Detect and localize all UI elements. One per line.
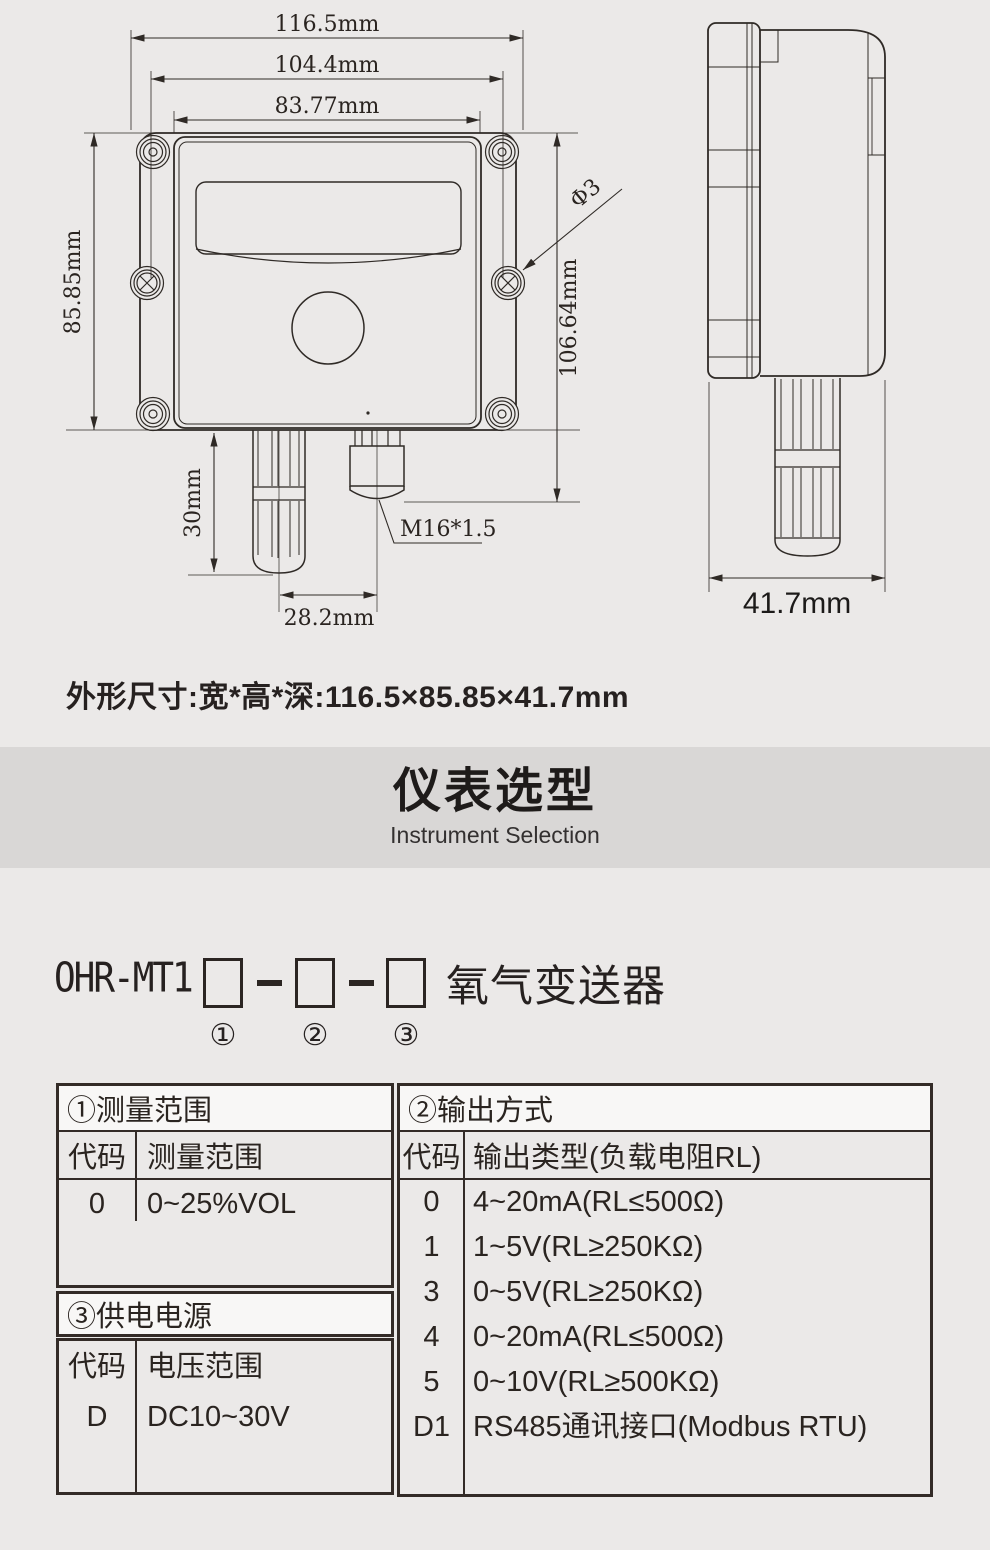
range-row-value: 0~25%VOL	[137, 1180, 391, 1221]
output-header-row: 代码 输出类型(负载电阻RL)	[400, 1132, 930, 1180]
power-col-value: 电压范围	[147, 1341, 391, 1393]
output-code-column: 0 1 3 4 5 D1	[400, 1180, 465, 1494]
datasheet-page: 116.5mm 104.4mm 83.77mm 85.85mm 106.64mm…	[0, 0, 990, 1550]
output-value-column: 4~20mA(RL≤500Ω) 1~5V(RL≥250KΩ) 0~5V(RL≥2…	[465, 1180, 930, 1494]
dim-width-inner: 83.77mm	[275, 94, 380, 119]
table-row: 0 0~25%VOL	[59, 1180, 391, 1285]
dim-width-total: 116.5mm	[275, 12, 380, 37]
slot-mark-1: ①	[203, 1018, 243, 1053]
model-dash-2	[349, 980, 374, 986]
model-dash-1	[257, 980, 282, 986]
output-code: D1	[413, 1405, 450, 1450]
power-row-code: D	[87, 1393, 108, 1441]
power-value-column: 电压范围 DC10~30V	[137, 1341, 391, 1492]
display-window	[196, 182, 461, 254]
banner-title: 仪表选型	[393, 766, 597, 819]
range-col-code: 代码	[59, 1132, 137, 1178]
range-section-title: ①测量范围	[59, 1086, 391, 1132]
model-slot-2	[295, 958, 335, 1008]
dim-hole-spacing: 104.4mm	[275, 53, 380, 78]
output-value: 4~20mA(RL≤500Ω)	[473, 1180, 930, 1225]
output-value: 0~10V(RL≥500KΩ)	[473, 1360, 930, 1405]
dim-height-body: 85.85mm	[61, 230, 86, 335]
output-col-code: 代码	[400, 1132, 465, 1178]
front-body	[174, 137, 481, 428]
output-value: 1~5V(RL≥250KΩ)	[473, 1225, 930, 1270]
output-col-value: 输出类型(负载电阻RL)	[465, 1132, 930, 1178]
mounting-screws	[131, 136, 525, 431]
side-view	[708, 23, 885, 556]
output-code: 5	[423, 1360, 439, 1405]
model-prefix: OHR-MT1	[54, 955, 192, 1002]
output-body: 0 1 3 4 5 D1 4~20mA(RL≤500Ω) 1~5V(RL≥250…	[400, 1180, 930, 1494]
dim-probe-offset: 28.2mm	[284, 606, 375, 631]
output-value: 0~5V(RL≥250KΩ)	[473, 1270, 930, 1315]
section-banner: 仪表选型 Instrument Selection	[0, 747, 990, 868]
model-product-name: 氧气变送器	[446, 952, 666, 1014]
dim-depth: 41.7mm	[743, 587, 851, 620]
table-power-title-box: ③供电电源	[56, 1291, 394, 1337]
range-col-value: 测量范围	[137, 1132, 391, 1178]
sensor-circle	[292, 292, 364, 364]
output-code: 0	[423, 1180, 439, 1225]
range-row-code: 0	[59, 1180, 137, 1221]
dim-height-with-gland: 106.64mm	[557, 259, 582, 378]
overall-size-note: 外形尺寸:宽*高*深:116.5×85.85×41.7mm	[66, 672, 629, 716]
power-section-title: ③供电电源	[67, 1293, 212, 1335]
slot-mark-2: ②	[295, 1018, 335, 1053]
dim-hole-diameter: Φ3	[566, 174, 607, 214]
model-slot-1	[203, 958, 243, 1008]
probe-side	[775, 378, 840, 556]
phi3-hole-right	[492, 267, 525, 300]
power-row-value: DC10~30V	[147, 1393, 391, 1441]
table-output-section: ②输出方式 代码 输出类型(负载电阻RL) 0 1 3 4 5 D1 4~20m…	[397, 1083, 933, 1497]
output-value: 0~20mA(RL≤500Ω)	[473, 1315, 930, 1360]
power-col-code: 代码	[68, 1341, 126, 1393]
dimension-lines	[94, 38, 885, 595]
technical-drawing: 116.5mm 104.4mm 83.77mm 85.85mm 106.64mm…	[0, 0, 990, 655]
power-code-column: 代码 D	[59, 1341, 137, 1492]
range-header-row: 代码 测量范围	[59, 1132, 391, 1180]
output-code: 1	[423, 1225, 439, 1270]
table-power-section: 代码 D 电压范围 DC10~30V	[56, 1338, 394, 1495]
dim-thread-spec: M16*1.5	[400, 517, 497, 542]
model-slot-3	[386, 958, 426, 1008]
output-value: RS485通讯接口(Modbus RTU)	[473, 1405, 930, 1450]
banner-subtitle: Instrument Selection	[390, 822, 600, 849]
output-code: 3	[423, 1270, 439, 1315]
table-range-section: ①测量范围 代码 测量范围 0 0~25%VOL	[56, 1083, 394, 1288]
dim-probe-length: 30mm	[181, 468, 206, 538]
front-view-outline	[140, 133, 516, 430]
slot-mark-3: ③	[386, 1018, 426, 1053]
output-section-title: ②输出方式	[400, 1086, 930, 1132]
phi3-hole-left	[131, 267, 164, 300]
output-code: 4	[423, 1315, 439, 1360]
